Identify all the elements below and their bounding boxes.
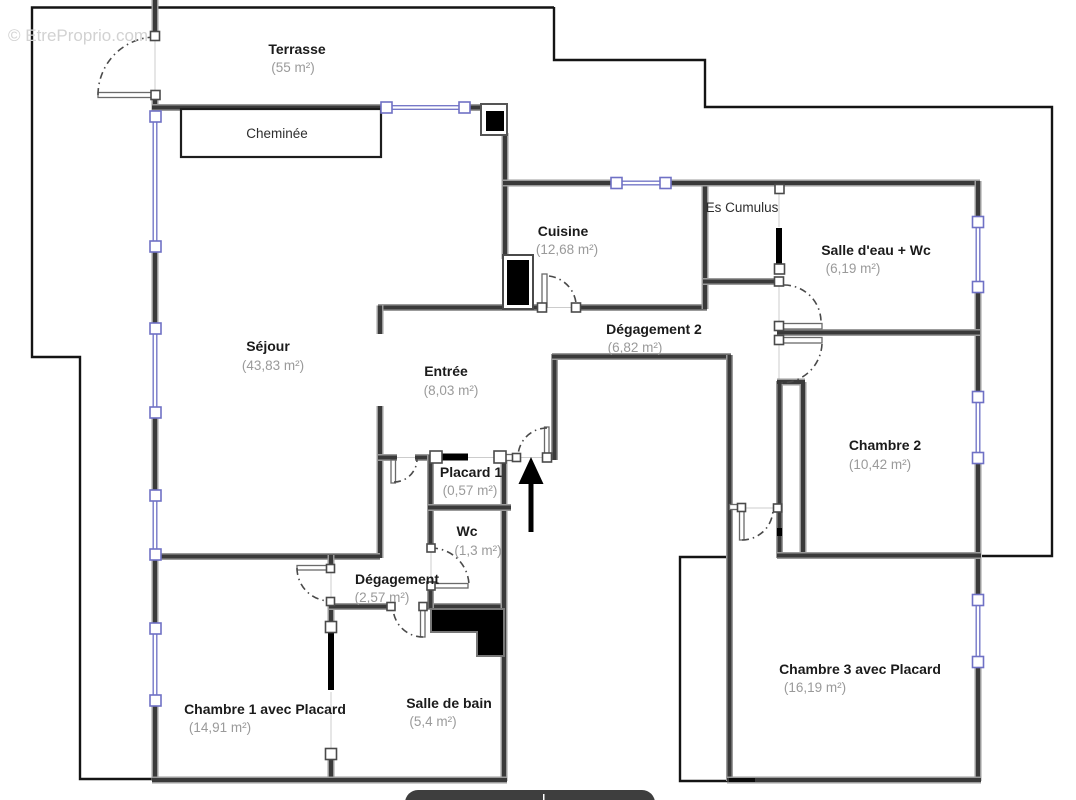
svg-text:Cheminée: Cheminée	[246, 126, 308, 141]
svg-text:Dégagement 2: Dégagement 2	[606, 321, 702, 337]
svg-text:Placard 1: Placard 1	[440, 464, 502, 480]
svg-text:(14,91 m²): (14,91 m²)	[189, 720, 251, 735]
svg-text:Salle d'eau + Wc: Salle d'eau + Wc	[821, 242, 931, 258]
svg-text:Séjour: Séjour	[246, 338, 290, 354]
svg-text:Es Cumulus: Es Cumulus	[706, 200, 779, 215]
svg-text:Chambre 3 avec Placard: Chambre 3 avec Placard	[779, 661, 941, 677]
svg-text:(43,83 m²): (43,83 m²)	[242, 358, 304, 373]
svg-text:(1,3 m²): (1,3 m²)	[454, 543, 501, 558]
svg-text:Chambre 2: Chambre 2	[849, 437, 922, 453]
svg-text:(10,42 m²): (10,42 m²)	[849, 457, 911, 472]
svg-text:(5,4 m²): (5,4 m²)	[409, 714, 456, 729]
svg-text:(0,57 m²): (0,57 m²)	[443, 483, 498, 498]
svg-text:Entrée: Entrée	[424, 363, 468, 379]
svg-text:Dégagement: Dégagement	[355, 571, 439, 587]
svg-text:© EtreProprio.com: © EtreProprio.com	[8, 26, 148, 45]
svg-text:(55 m²): (55 m²)	[271, 60, 315, 75]
svg-text:(6,19 m²): (6,19 m²)	[826, 261, 881, 276]
svg-text:(2,57 m²): (2,57 m²)	[355, 590, 410, 605]
svg-text:(16,19 m²): (16,19 m²)	[784, 680, 846, 695]
svg-text:Terrasse: Terrasse	[268, 41, 326, 57]
svg-text:Salle de bain: Salle de bain	[406, 695, 492, 711]
svg-text:Cuisine: Cuisine	[538, 223, 589, 239]
svg-text:(8,03 m²): (8,03 m²)	[424, 383, 479, 398]
svg-text:(12,68 m²): (12,68 m²)	[536, 242, 598, 257]
svg-text:Chambre 1 avec Placard: Chambre 1 avec Placard	[184, 701, 346, 717]
svg-text:(6,82 m²): (6,82 m²)	[608, 340, 663, 355]
svg-text:Wc: Wc	[457, 523, 478, 539]
